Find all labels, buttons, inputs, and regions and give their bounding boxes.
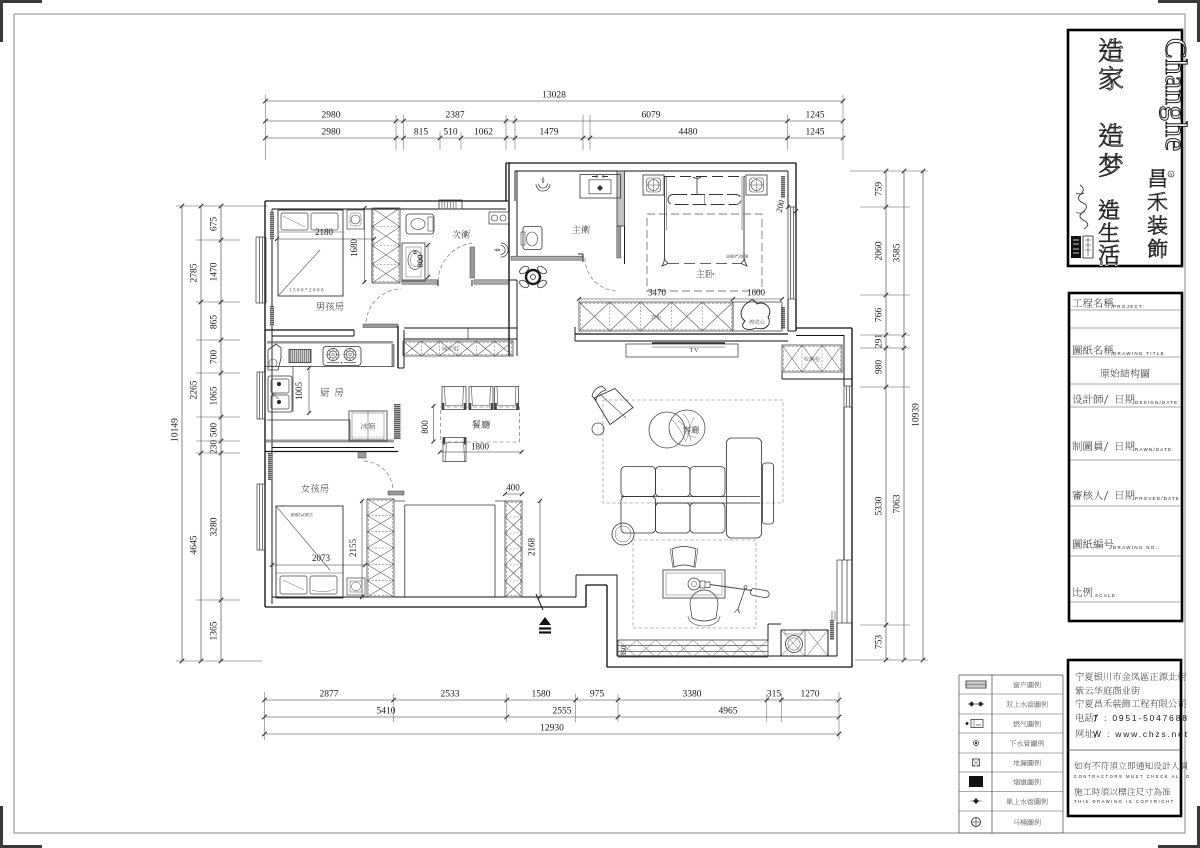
svg-text:1600: 1600 (747, 288, 766, 298)
svg-text:2265: 2265 (190, 380, 200, 399)
svg-text:753: 753 (875, 635, 885, 650)
svg-text:1470: 1470 (210, 262, 220, 281)
svg-text:766: 766 (875, 308, 885, 323)
svg-text:DRAWING TITLE: DRAWING TITLE (1113, 351, 1165, 356)
svg-text:4480: 4480 (679, 128, 698, 138)
svg-text:675: 675 (210, 217, 220, 232)
svg-text:1680: 1680 (349, 239, 359, 258)
svg-text:865: 865 (210, 315, 220, 330)
svg-text:1270: 1270 (801, 690, 820, 700)
svg-text:4645: 4645 (190, 535, 200, 554)
svg-text:CONTRACTORS MUST CHECK ALL D: CONTRACTORS MUST CHECK ALL D (1074, 774, 1191, 779)
svg-text:1245: 1245 (806, 128, 825, 138)
svg-text:10149: 10149 (171, 418, 181, 442)
svg-text:2073: 2073 (312, 553, 331, 563)
svg-text:5330: 5330 (875, 496, 885, 515)
svg-text:3585: 3585 (893, 243, 903, 262)
svg-text:2980: 2980 (322, 128, 341, 138)
svg-text:2180: 2180 (315, 227, 334, 237)
svg-text:SCALE:: SCALE: (1095, 593, 1119, 598)
svg-text:7063: 7063 (893, 494, 903, 513)
svg-text:980: 980 (875, 360, 885, 375)
svg-text:1580: 1580 (532, 690, 551, 700)
svg-text:PROVED/DATE:: PROVED/DATE: (1135, 496, 1183, 501)
svg-text:1800: 1800 (471, 442, 490, 452)
svg-text:1500*2000: 1500*2000 (290, 511, 313, 516)
svg-text:2387: 2387 (446, 111, 465, 121)
svg-text:500: 500 (210, 423, 220, 438)
svg-text:350: 350 (619, 645, 628, 657)
svg-text:1245: 1245 (806, 111, 825, 121)
svg-text:Changhe: Changhe (1159, 38, 1194, 152)
svg-text:2060: 2060 (875, 241, 885, 260)
svg-text:800: 800 (415, 255, 425, 268)
svg-text:4965: 4965 (719, 707, 738, 717)
svg-text:800: 800 (420, 420, 430, 434)
svg-text:RAWN/DATE:: RAWN/DATE: (1135, 447, 1175, 452)
svg-text:3280: 3280 (210, 517, 220, 536)
svg-text:DESIGN/DATE:: DESIGN/DATE: (1135, 400, 1181, 405)
svg-text:6079: 6079 (642, 111, 661, 121)
svg-text:3470: 3470 (648, 288, 667, 298)
svg-text:1365: 1365 (210, 621, 220, 640)
svg-text:2155: 2155 (348, 539, 358, 558)
svg-text:10939: 10939 (912, 403, 922, 427)
svg-text:5410: 5410 (377, 707, 396, 717)
svg-text:2785: 2785 (190, 263, 200, 282)
svg-text:315: 315 (767, 690, 782, 700)
svg-text:2980: 2980 (322, 111, 341, 121)
svg-text:230: 230 (210, 440, 220, 455)
svg-text:THIS DRAWING IS COPYRIGHT: THIS DRAWING IS COPYRIGHT (1074, 799, 1175, 804)
svg-text:510: 510 (443, 128, 458, 138)
svg-text:815: 815 (414, 128, 429, 138)
svg-text:2877: 2877 (320, 690, 339, 700)
svg-text:2168: 2168 (527, 538, 537, 557)
svg-text:700: 700 (210, 350, 220, 365)
svg-text:1500*2000: 1500*2000 (289, 289, 325, 294)
svg-text:12930: 12930 (540, 724, 564, 734)
svg-text:1479: 1479 (540, 128, 559, 138)
svg-text:PROJECT:: PROJECT: (1113, 304, 1145, 309)
svg-text:DRAWING NO.:: DRAWING NO.: (1113, 545, 1161, 550)
svg-text:400: 400 (506, 483, 520, 493)
svg-text:975: 975 (590, 690, 605, 700)
svg-text:291: 291 (875, 334, 885, 349)
svg-text:T : 0951-5047688: T : 0951-5047688 (1093, 713, 1189, 723)
svg-text:W : www.chzs.net: W : www.chzs.net (1093, 729, 1189, 739)
svg-text:2533: 2533 (441, 690, 460, 700)
svg-text:1800*2000: 1800*2000 (726, 255, 749, 260)
svg-text:3380: 3380 (683, 690, 702, 700)
svg-text:1065: 1065 (210, 386, 220, 405)
svg-text:1062: 1062 (474, 128, 493, 138)
svg-text:T V: T V (689, 348, 699, 354)
svg-text:1005: 1005 (294, 382, 304, 401)
svg-text:13028: 13028 (542, 91, 566, 101)
svg-text:759: 759 (875, 182, 885, 197)
svg-text:2555: 2555 (553, 707, 572, 717)
